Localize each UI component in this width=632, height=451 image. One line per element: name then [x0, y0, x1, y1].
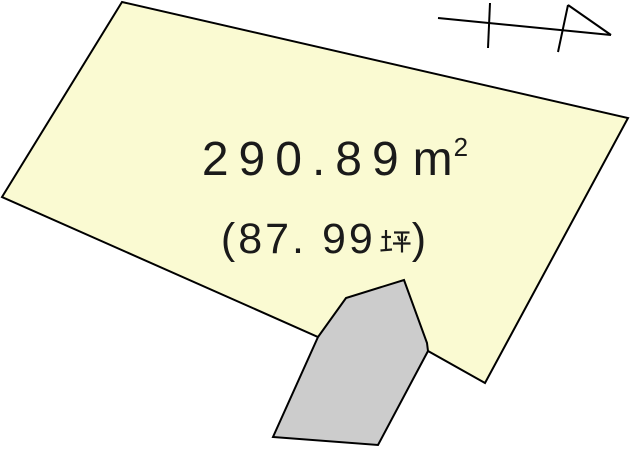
area-unit-exponent: 2	[454, 132, 468, 162]
north-arrow-head-left-edge	[558, 5, 568, 52]
land-plot-diagram: 290.89m2 (87. 99 )	[0, 0, 632, 451]
tsubo-value: 87. 99	[238, 215, 376, 263]
tsubo-close-paren: )	[412, 215, 429, 263]
north-arrow-crossbar	[488, 3, 490, 48]
tsubo-kanji-glyph	[379, 224, 411, 256]
area-unit-m: m	[413, 133, 453, 186]
area-label: 290.89m2	[150, 134, 520, 184]
tsubo-open-paren: (	[221, 215, 238, 263]
area-tsubo-label: (87. 99 )	[140, 218, 510, 261]
area-value: 290.89	[202, 133, 409, 186]
north-arrow-icon	[438, 3, 611, 52]
north-arrow-shaft	[438, 18, 611, 35]
main-parcel-shape	[2, 2, 628, 383]
